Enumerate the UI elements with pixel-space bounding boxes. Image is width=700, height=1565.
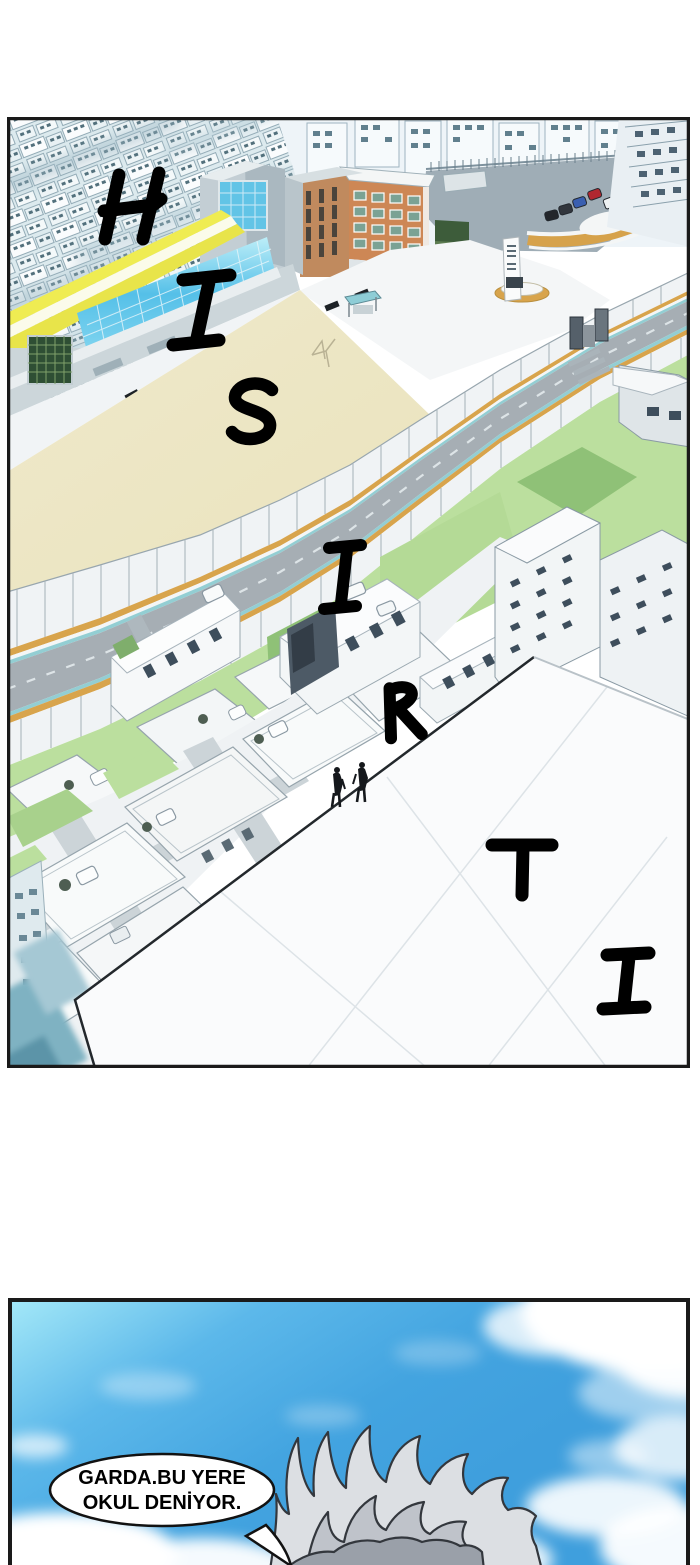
svg-text:GARDA.BU YERE: GARDA.BU YERE [78, 1467, 245, 1489]
svg-text:OKUL DENİYOR.: OKUL DENİYOR. [83, 1491, 242, 1514]
